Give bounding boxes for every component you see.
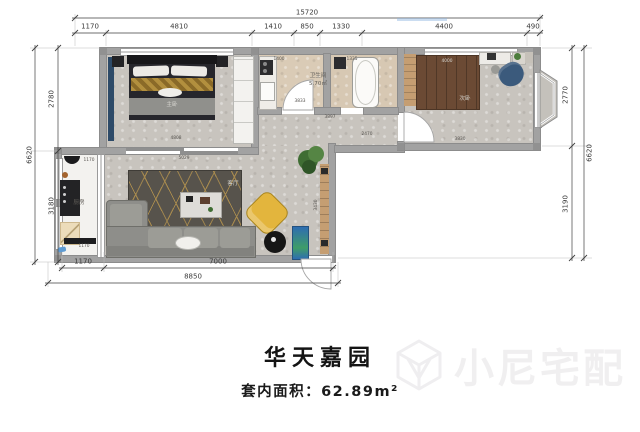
room-label: 主卧	[166, 102, 177, 108]
interior-label: 3897	[324, 115, 335, 119]
bay-window-glass-line	[541, 74, 554, 124]
dim-label: 7000	[209, 259, 227, 266]
corner-post	[55, 255, 61, 262]
dim-label: 1170	[81, 24, 99, 31]
master-wardrobe	[233, 56, 254, 144]
cabinet-blue	[292, 226, 309, 260]
side-table-black	[264, 231, 286, 253]
desk-laptop	[487, 53, 496, 60]
corner-post	[397, 143, 404, 150]
watermark-cube-icon	[392, 338, 446, 392]
room-label: 卫生间	[310, 73, 327, 79]
wall-master-left	[100, 48, 106, 154]
dim-label: 4810	[170, 24, 188, 31]
interior-label: 3830	[454, 137, 465, 141]
bay-window	[540, 70, 557, 128]
dim-label: 1330	[332, 24, 350, 31]
entry-door-arc	[301, 259, 331, 289]
interior-label: 1170	[78, 244, 89, 248]
dim-label: 4400	[435, 24, 453, 31]
corner-post	[533, 143, 540, 150]
dim-label: 2780	[49, 90, 56, 108]
range-knob	[63, 186, 66, 189]
room-label: 次卧	[459, 96, 470, 102]
dim-label: 490	[526, 24, 539, 31]
interior-label: 4808	[170, 136, 181, 140]
glass-partition	[97, 154, 105, 258]
interior-label: 3833	[294, 99, 305, 103]
dim-label: 3180	[49, 197, 56, 215]
bay-window-opening	[534, 72, 542, 128]
floorplan-page: 1572011704810141085013304400490662027803…	[0, 0, 640, 432]
dim-label: 15720	[296, 10, 318, 17]
side-table-dot	[271, 237, 276, 242]
bed-headboard	[127, 55, 217, 64]
sliding-door-panel	[180, 151, 238, 154]
dim-label: 1170	[74, 259, 92, 266]
room-label: 5.70㎡	[309, 81, 327, 87]
plant-large	[302, 160, 316, 174]
master-tall-cabinet	[108, 57, 114, 141]
wall-living-right	[329, 144, 335, 262]
highlight-streak	[397, 18, 447, 21]
corner-post	[55, 148, 61, 154]
pot	[62, 172, 68, 178]
sofa-cushion	[220, 228, 250, 248]
wall-kitchen-corridor-c	[364, 108, 398, 114]
wall-bedroom2-bottom	[398, 144, 540, 150]
bedroom2-closet	[404, 54, 416, 106]
bay-window-glass	[541, 74, 554, 124]
room-label: 厨房	[73, 200, 84, 206]
watermark-text: 小尼宅配	[454, 336, 626, 394]
dim-label: 6620	[587, 144, 594, 162]
interior-label: 1170	[83, 158, 94, 162]
stove-burner	[263, 69, 267, 73]
bed-pillow	[133, 65, 169, 76]
interior-label: 4000	[441, 59, 452, 63]
shelf-item-dark	[321, 240, 328, 246]
interior-label: 1400	[273, 57, 284, 61]
sofa-tray-table	[175, 236, 201, 250]
corner-post	[100, 48, 107, 55]
bed-deco-pillow	[158, 88, 182, 97]
interior-label: 3430	[314, 199, 318, 210]
dim-label: 3190	[563, 195, 570, 213]
sliding-door-panel	[126, 148, 184, 151]
nightstand-left	[112, 56, 124, 67]
wall-shelf-item	[525, 52, 533, 63]
corner-table-plant	[514, 53, 521, 60]
interior-label: 2470	[361, 132, 372, 136]
interior-label: 5029	[178, 156, 189, 160]
coffee-table-item	[186, 196, 193, 202]
bed-pillow	[171, 65, 207, 76]
dim-label: 850	[300, 24, 313, 31]
nightstand-right	[216, 56, 228, 67]
interior-label: 1335	[346, 57, 357, 61]
wall-corridor-south	[335, 146, 404, 152]
range-knob	[63, 193, 66, 196]
corner-post	[251, 48, 258, 55]
coffee-table-tray	[200, 197, 210, 204]
dim-label: 6620	[27, 146, 34, 164]
coffee-table-plant	[208, 207, 213, 212]
bathtub-basin	[355, 60, 376, 105]
kitchen-sink	[260, 82, 275, 101]
shelf-item-dark	[321, 168, 328, 174]
stove-burner	[263, 62, 267, 66]
range-knob	[63, 200, 66, 203]
dim-label: 8850	[184, 274, 202, 281]
watermark: 小尼宅配	[392, 336, 626, 394]
dim-label: 2770	[563, 86, 570, 104]
wall-kitchen-corridor-b	[315, 108, 340, 114]
water-heater	[334, 57, 346, 69]
corner-post	[533, 48, 540, 55]
room-label: 客厅	[227, 181, 238, 187]
dim-label: 1410	[264, 24, 282, 31]
